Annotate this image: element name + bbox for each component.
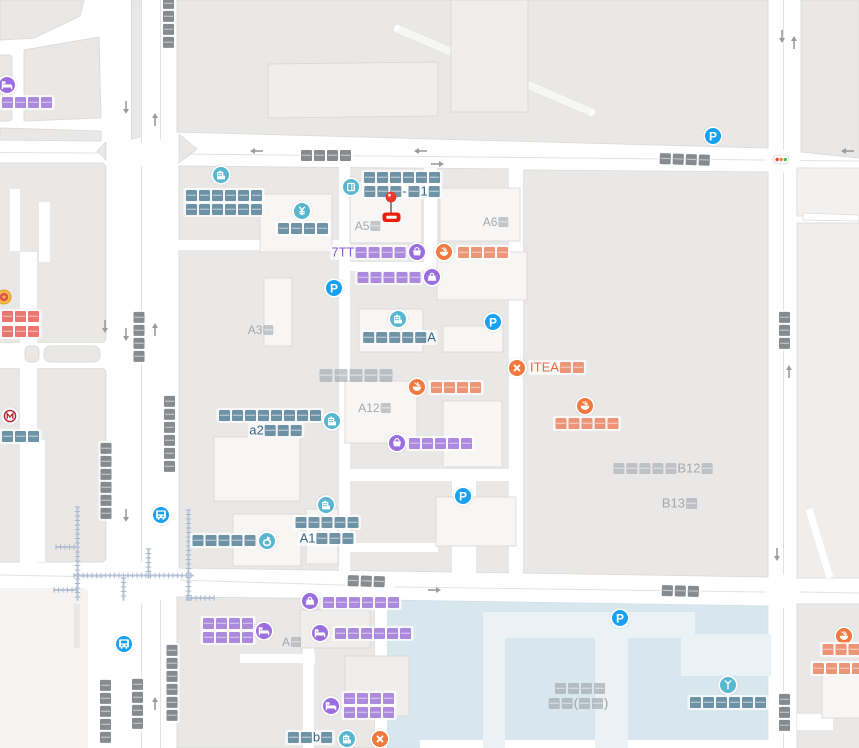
svg-text:A12: A12 (358, 401, 380, 415)
svg-text:P: P (489, 315, 497, 329)
svg-text:P: P (709, 129, 717, 143)
svg-text:A: A (427, 330, 436, 345)
svg-text:A: A (282, 635, 290, 649)
svg-text:1: 1 (421, 184, 428, 199)
svg-text:7TT: 7TT (331, 245, 354, 260)
svg-text:): ) (604, 696, 608, 711)
svg-text:(: ( (574, 696, 579, 711)
svg-text:P: P (330, 281, 338, 295)
svg-text:a2: a2 (249, 423, 263, 438)
svg-text:P: P (459, 489, 467, 503)
svg-text:P: P (616, 611, 624, 625)
svg-text:A1: A1 (300, 531, 316, 546)
svg-text:ITEA: ITEA (530, 360, 559, 375)
svg-text:-: - (402, 184, 406, 199)
svg-text:A3: A3 (248, 323, 263, 337)
svg-text:B13: B13 (662, 496, 685, 511)
svg-text:b: b (313, 730, 320, 745)
svg-text:B12: B12 (677, 461, 700, 476)
svg-text:A5: A5 (355, 219, 370, 233)
svg-text:A6: A6 (483, 215, 498, 229)
